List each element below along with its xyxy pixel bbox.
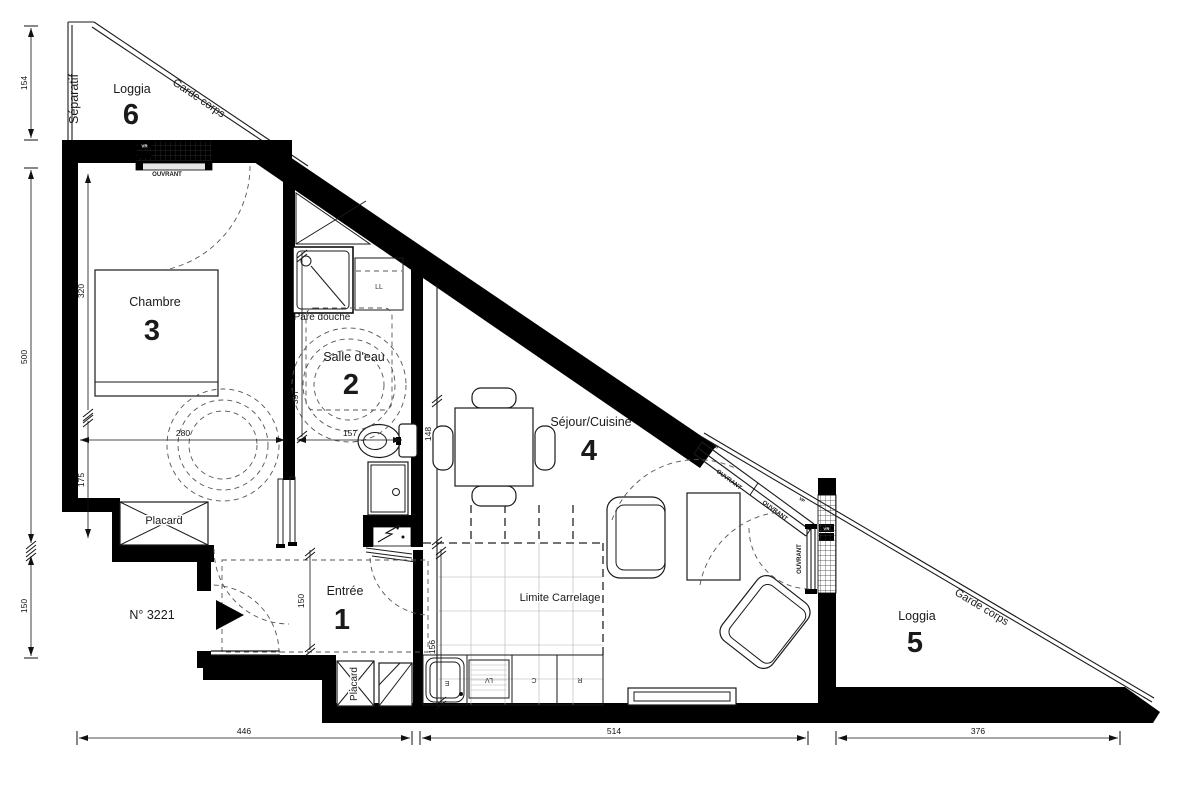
armchair-1 [607,497,665,578]
toilet [358,424,417,458]
walls [62,140,1160,723]
entree-zone: N° 3221 [129,549,428,655]
unit-number-label: N° 3221 [129,608,174,622]
clearance-circles-chambre [167,389,279,501]
dim-150-entree: 150 [296,594,306,608]
dim-157: 157 [343,428,357,438]
side-table [687,493,740,580]
dim-500: 500 [19,350,29,364]
sliding-door-kitchen [366,548,416,562]
vanity-cabinet [368,462,408,515]
placard-entree: Placard [337,661,374,706]
pocket-door-chambre [276,477,297,548]
sideboard [628,688,736,705]
vr-label: VR [141,144,148,149]
dim-154: 154 [19,76,29,90]
ouvrant-window: OUVRANT [797,544,803,574]
room-name-entree: Entrée [327,584,364,598]
room-number-loggia5: 5 [907,627,923,659]
room-number-loggia6: 6 [123,99,139,131]
dim-156: 156 [427,640,437,654]
dim-320: 320 [76,284,86,298]
sink-label: E [444,679,449,686]
separatif-label: Séparatif [67,73,81,124]
dim-514: 514 [607,726,621,736]
dim-280: 280 [176,428,190,438]
garde-corps-label-6: Garde corps [170,77,227,121]
dim-446: 446 [237,726,251,736]
electric-radiator [373,525,411,546]
dining-table [433,388,555,506]
washing-machine-label: LL [375,284,383,291]
washing-machine: LL [355,258,403,310]
window-swing-arc [144,166,250,272]
room-number-chambre: 3 [144,315,160,347]
floor-plan-page: Séparatif Loggia 6 Garde corps VR [0,0,1192,800]
room-number-sejour: 4 [581,435,597,467]
hob-label: C [531,676,536,683]
entry-arrow [216,600,244,630]
room-name-salle-deau: Salle d'eau [323,350,385,364]
loggia5-bottom-wall [836,687,1160,723]
dim-376: 376 [971,726,985,736]
floor-plan-drawing: Séparatif Loggia 6 Garde corps VR [0,0,1192,800]
dim-175: 175 [76,473,86,487]
room-name-loggia6: Loggia [113,82,151,96]
fridge-label: R [577,676,582,683]
placard-chambre: Placard [120,502,208,545]
garde-corps-label-5: Garde corps [953,587,1011,629]
room-number-entree: 1 [334,604,350,636]
dim-397: 397 [290,390,300,404]
dim-150-left: 150 [19,599,29,613]
dishwasher-label: LV [485,676,493,683]
room-number-salle-deau: 2 [343,369,359,401]
water-heater [379,663,412,706]
room-name-sejour: Séjour/Cuisine [550,415,631,429]
placard-entree-label: Placard [349,667,360,701]
limite-carrelage-label: Limite Carrelage [520,592,601,604]
ouvrant-label: OUVRANT [152,172,182,178]
sink: E [426,658,464,702]
kitchen-counter: E LV C R [423,655,603,705]
ouvrant-bay-1: OUVRANT [715,469,743,491]
armchair-2 [715,571,815,673]
room-name-chambre: Chambre [129,295,180,309]
dim-148: 148 [423,427,433,441]
placard-label: Placard [145,515,182,527]
room-name-loggia5: Loggia [898,609,936,623]
